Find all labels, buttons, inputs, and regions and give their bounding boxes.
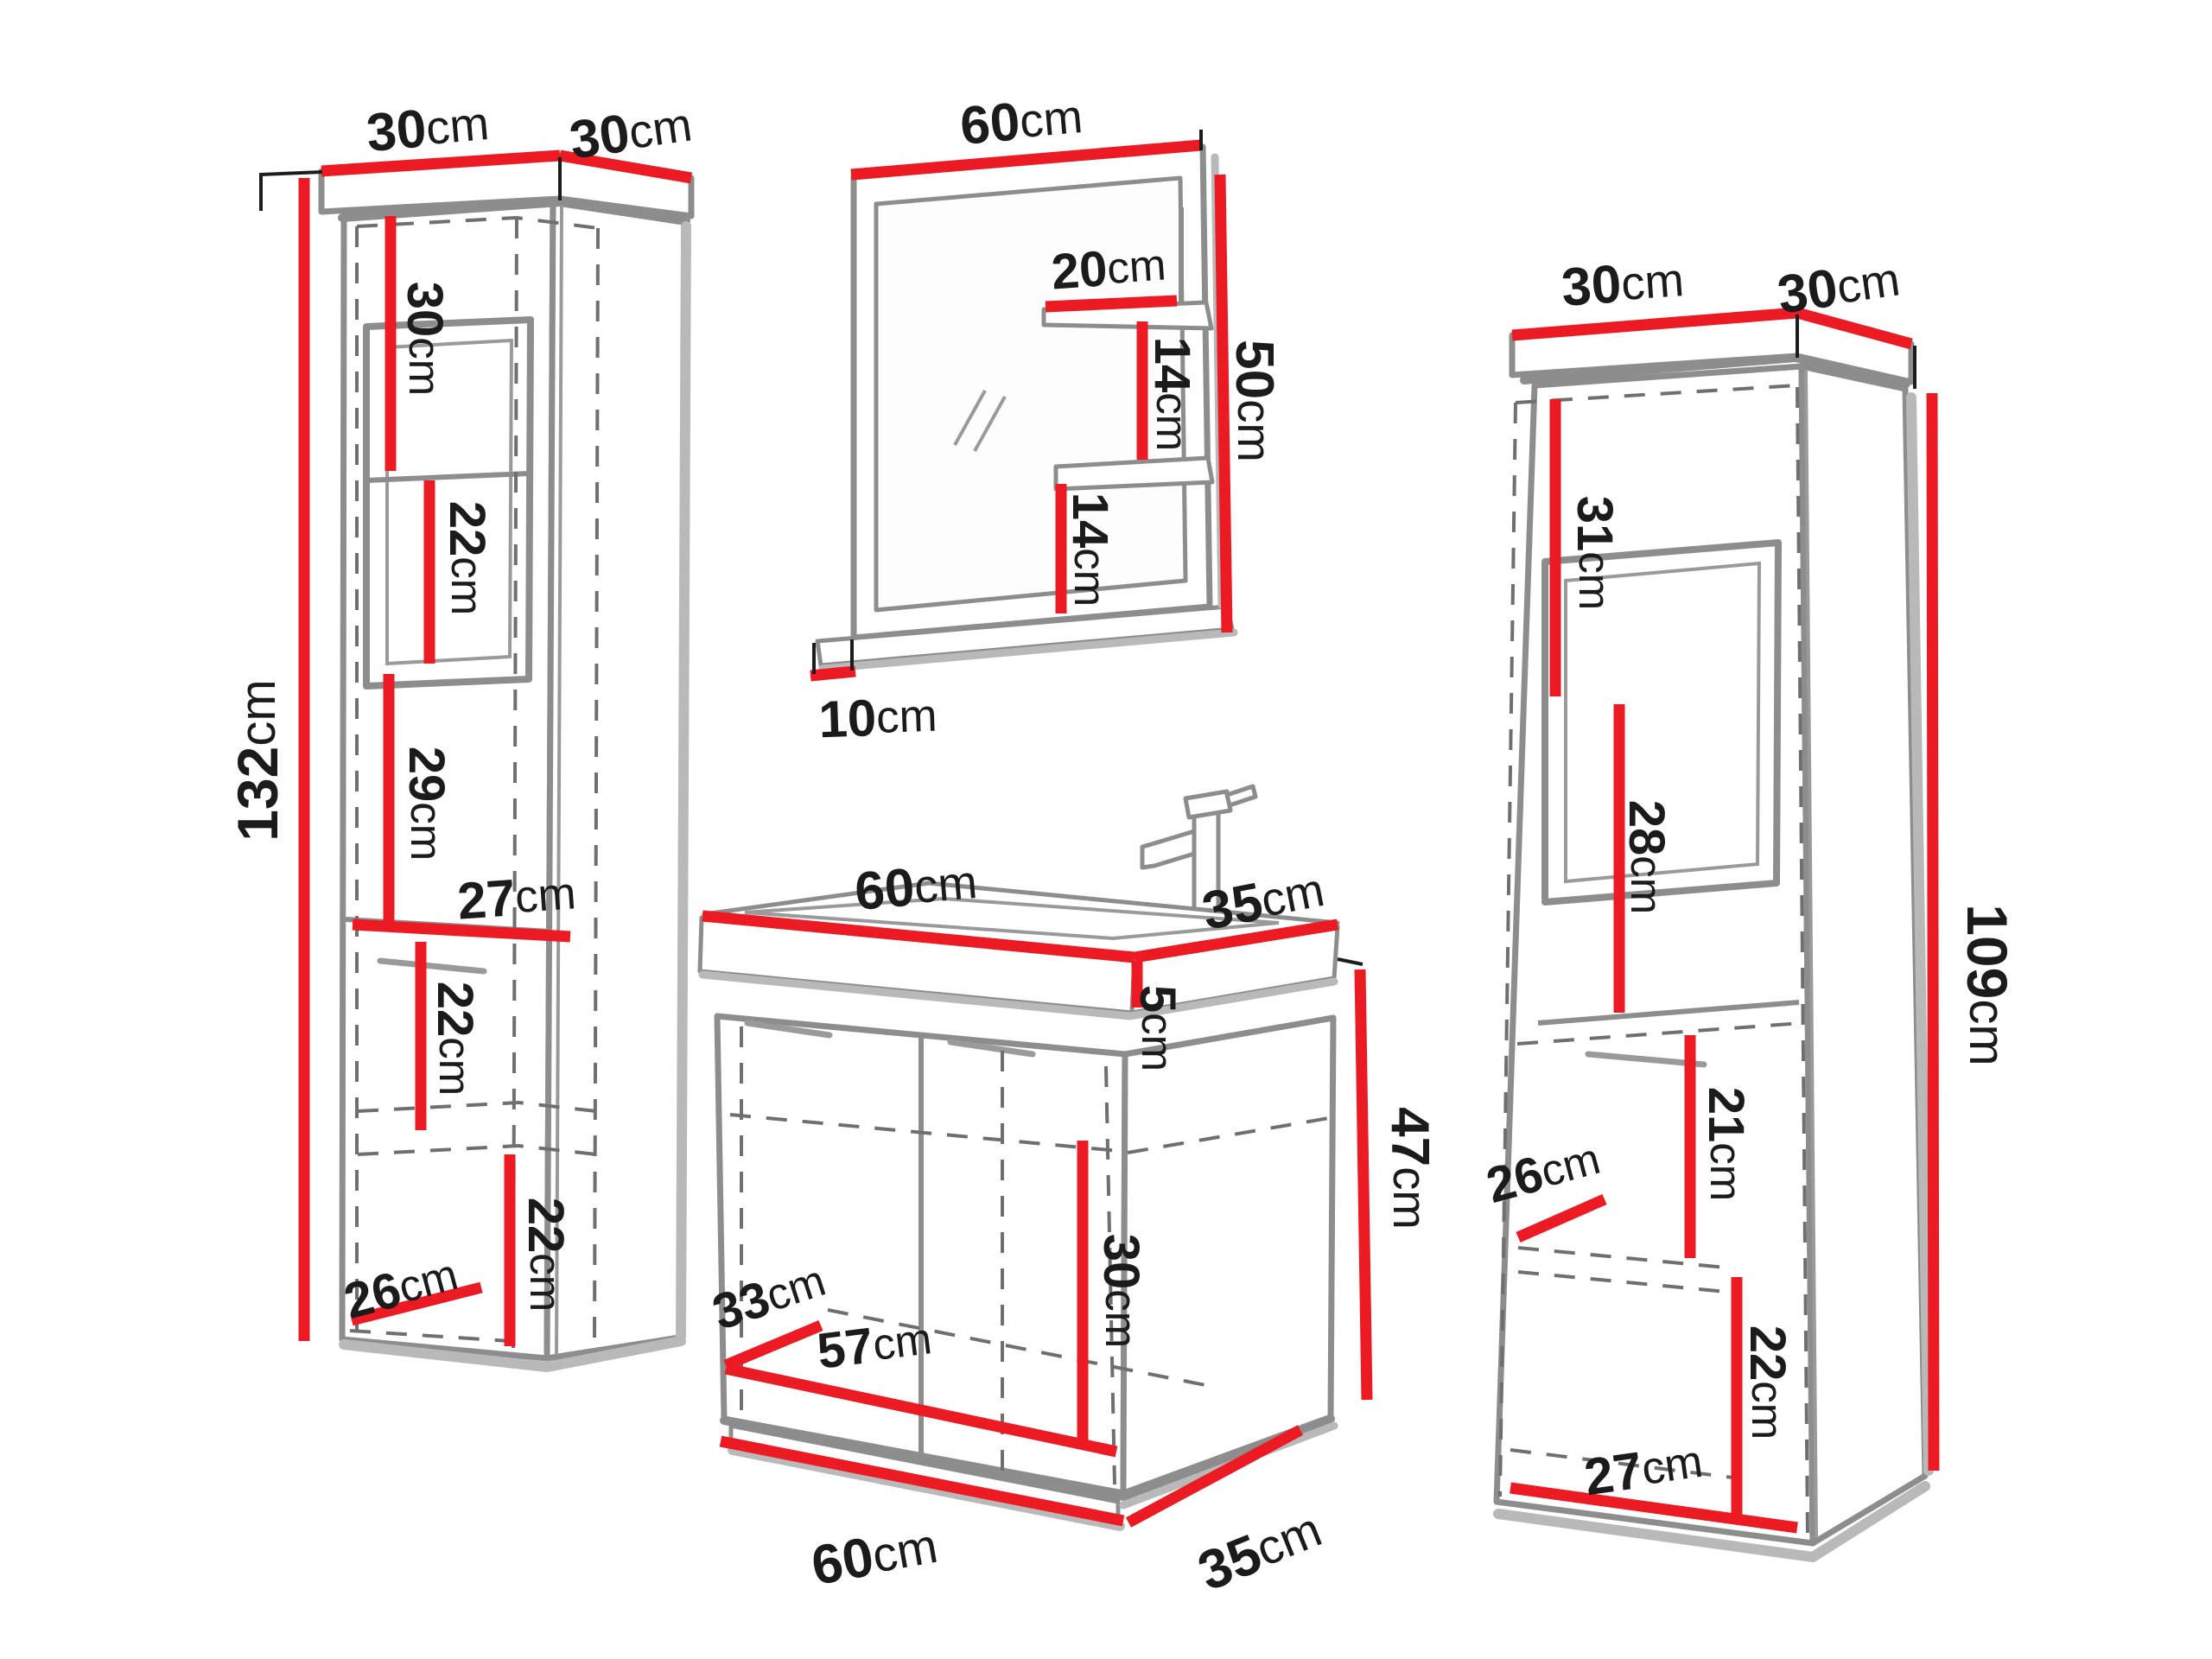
dim-label-body-47: 47cm — [1381, 1107, 1440, 1230]
left-column-cabinet: 30cm 30cm 132cm 30cm 22cm 29cm 27cm 22cm… — [226, 92, 696, 1367]
dim-label-top-depth: 30cm — [1774, 249, 1904, 325]
dim-line-body-47 — [1360, 969, 1367, 1400]
faucet-spout — [1142, 831, 1194, 868]
dim-label-height-50: 50cm — [1225, 340, 1285, 462]
cabinet-side-face — [547, 202, 684, 1358]
mirror-with-shelves: 60cm 20cm 14cm 14cm 50cm 10cm — [810, 86, 1285, 747]
dim-label-inner-30: 30cm — [1094, 1234, 1150, 1349]
dim-label-22: 22cm — [1740, 1325, 1796, 1440]
right-column-cabinet: 30cm 30cm 31cm 28cm 21cm 26cm 22cm 27cm … — [1481, 249, 2019, 1557]
dim-label-22b: 22cm — [428, 982, 484, 1096]
dim-label-top-width: 30cm — [364, 92, 491, 162]
diagram-canvas: 30cm 30cm 132cm 30cm 22cm 29cm 27cm 22cm… — [0, 0, 2212, 1659]
dim-label-30: 30cm — [397, 282, 454, 397]
faucet-lever — [1185, 791, 1230, 817]
side-shadow — [681, 226, 686, 1336]
dim-label-22a: 22cm — [440, 501, 496, 616]
dim-tick — [1338, 959, 1363, 964]
dim-label-gap-14b: 14cm — [1063, 493, 1119, 607]
dim-label-21: 21cm — [1699, 1087, 1755, 1202]
dim-line-height-109 — [1932, 393, 1934, 1471]
dim-label-height-132: 132cm — [226, 679, 289, 842]
dim-label-top-depth: 30cm — [566, 94, 696, 170]
dim-label-31: 31cm — [1567, 496, 1624, 611]
dim-label-28: 28cm — [1619, 800, 1675, 915]
dim-label-basin-5: 5cm — [1130, 985, 1186, 1071]
dim-label-depth-10: 10cm — [817, 686, 938, 748]
dim-label-gap-14a: 14cm — [1145, 337, 1201, 452]
dim-label-height-109: 109cm — [1955, 904, 2019, 1066]
vanity-side-face — [1123, 1018, 1333, 1493]
dim-label-22c: 22cm — [518, 1198, 575, 1313]
dim-label-bottom-60: 60cm — [807, 1514, 943, 1597]
dim-line-depth-10 — [810, 671, 855, 676]
dim-line-shelf-20 — [1046, 301, 1177, 307]
dim-line-height-50 — [1220, 175, 1227, 632]
dim-label-29: 29cm — [399, 747, 455, 861]
faucet-lever-knob — [1227, 786, 1255, 805]
dim-label-top-width: 30cm — [1560, 250, 1686, 318]
washbasin-cabinet: 60cm 35cm 5cm 30cm 33cm 57cm 60cm 35cm 4… — [700, 786, 1440, 1603]
dim-label-width-60: 60cm — [957, 86, 1084, 156]
dim-tick — [261, 172, 322, 211]
cabinet-side-face — [1802, 366, 1925, 1543]
dim-label-bottom-35: 35cm — [1190, 1497, 1331, 1603]
furniture-dimension-diagram: 30cm 30cm 132cm 30cm 22cm 29cm 27cm 22cm… — [0, 0, 2212, 1659]
